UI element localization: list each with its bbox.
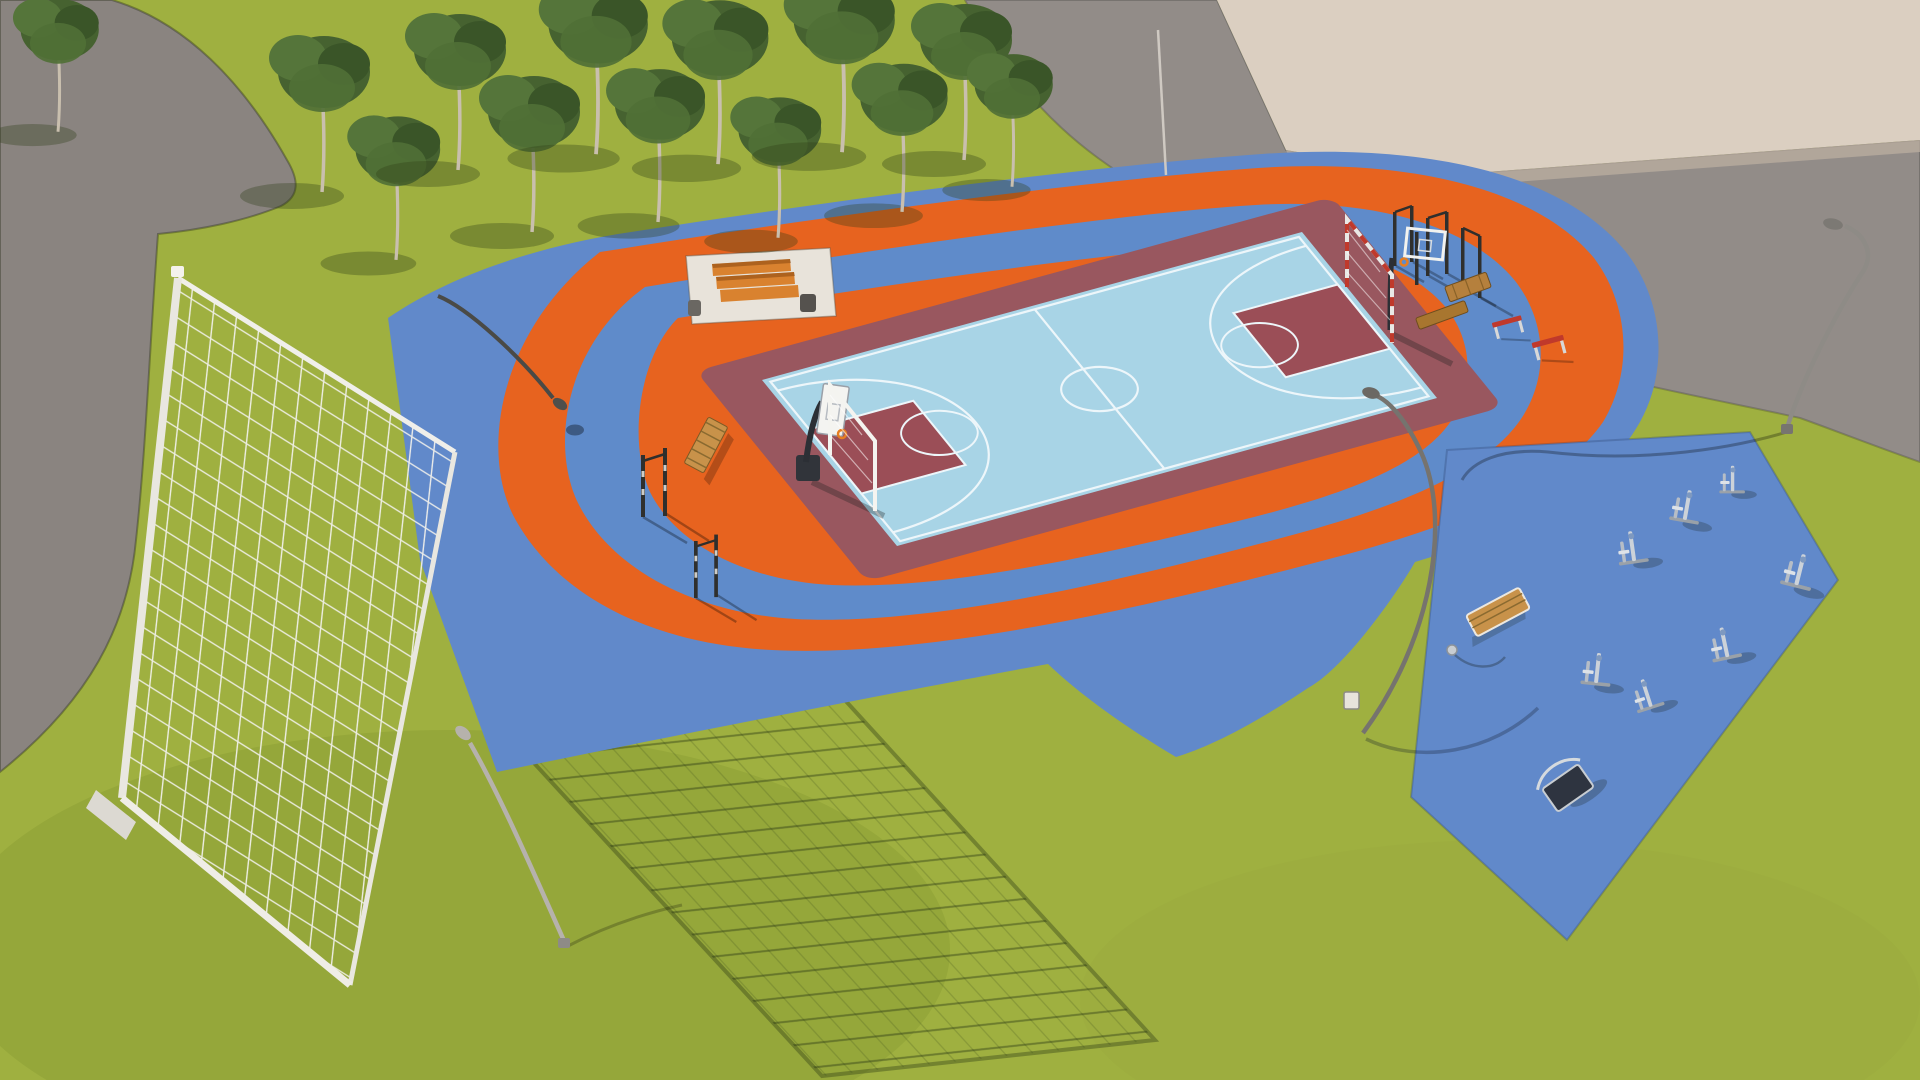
render-viewport xyxy=(0,0,1920,1080)
scene-svg xyxy=(0,0,1920,1080)
electrical-box xyxy=(1344,692,1359,709)
trash-bin-2 xyxy=(688,300,701,316)
trash-bin xyxy=(800,294,816,312)
bleacher xyxy=(686,248,836,324)
